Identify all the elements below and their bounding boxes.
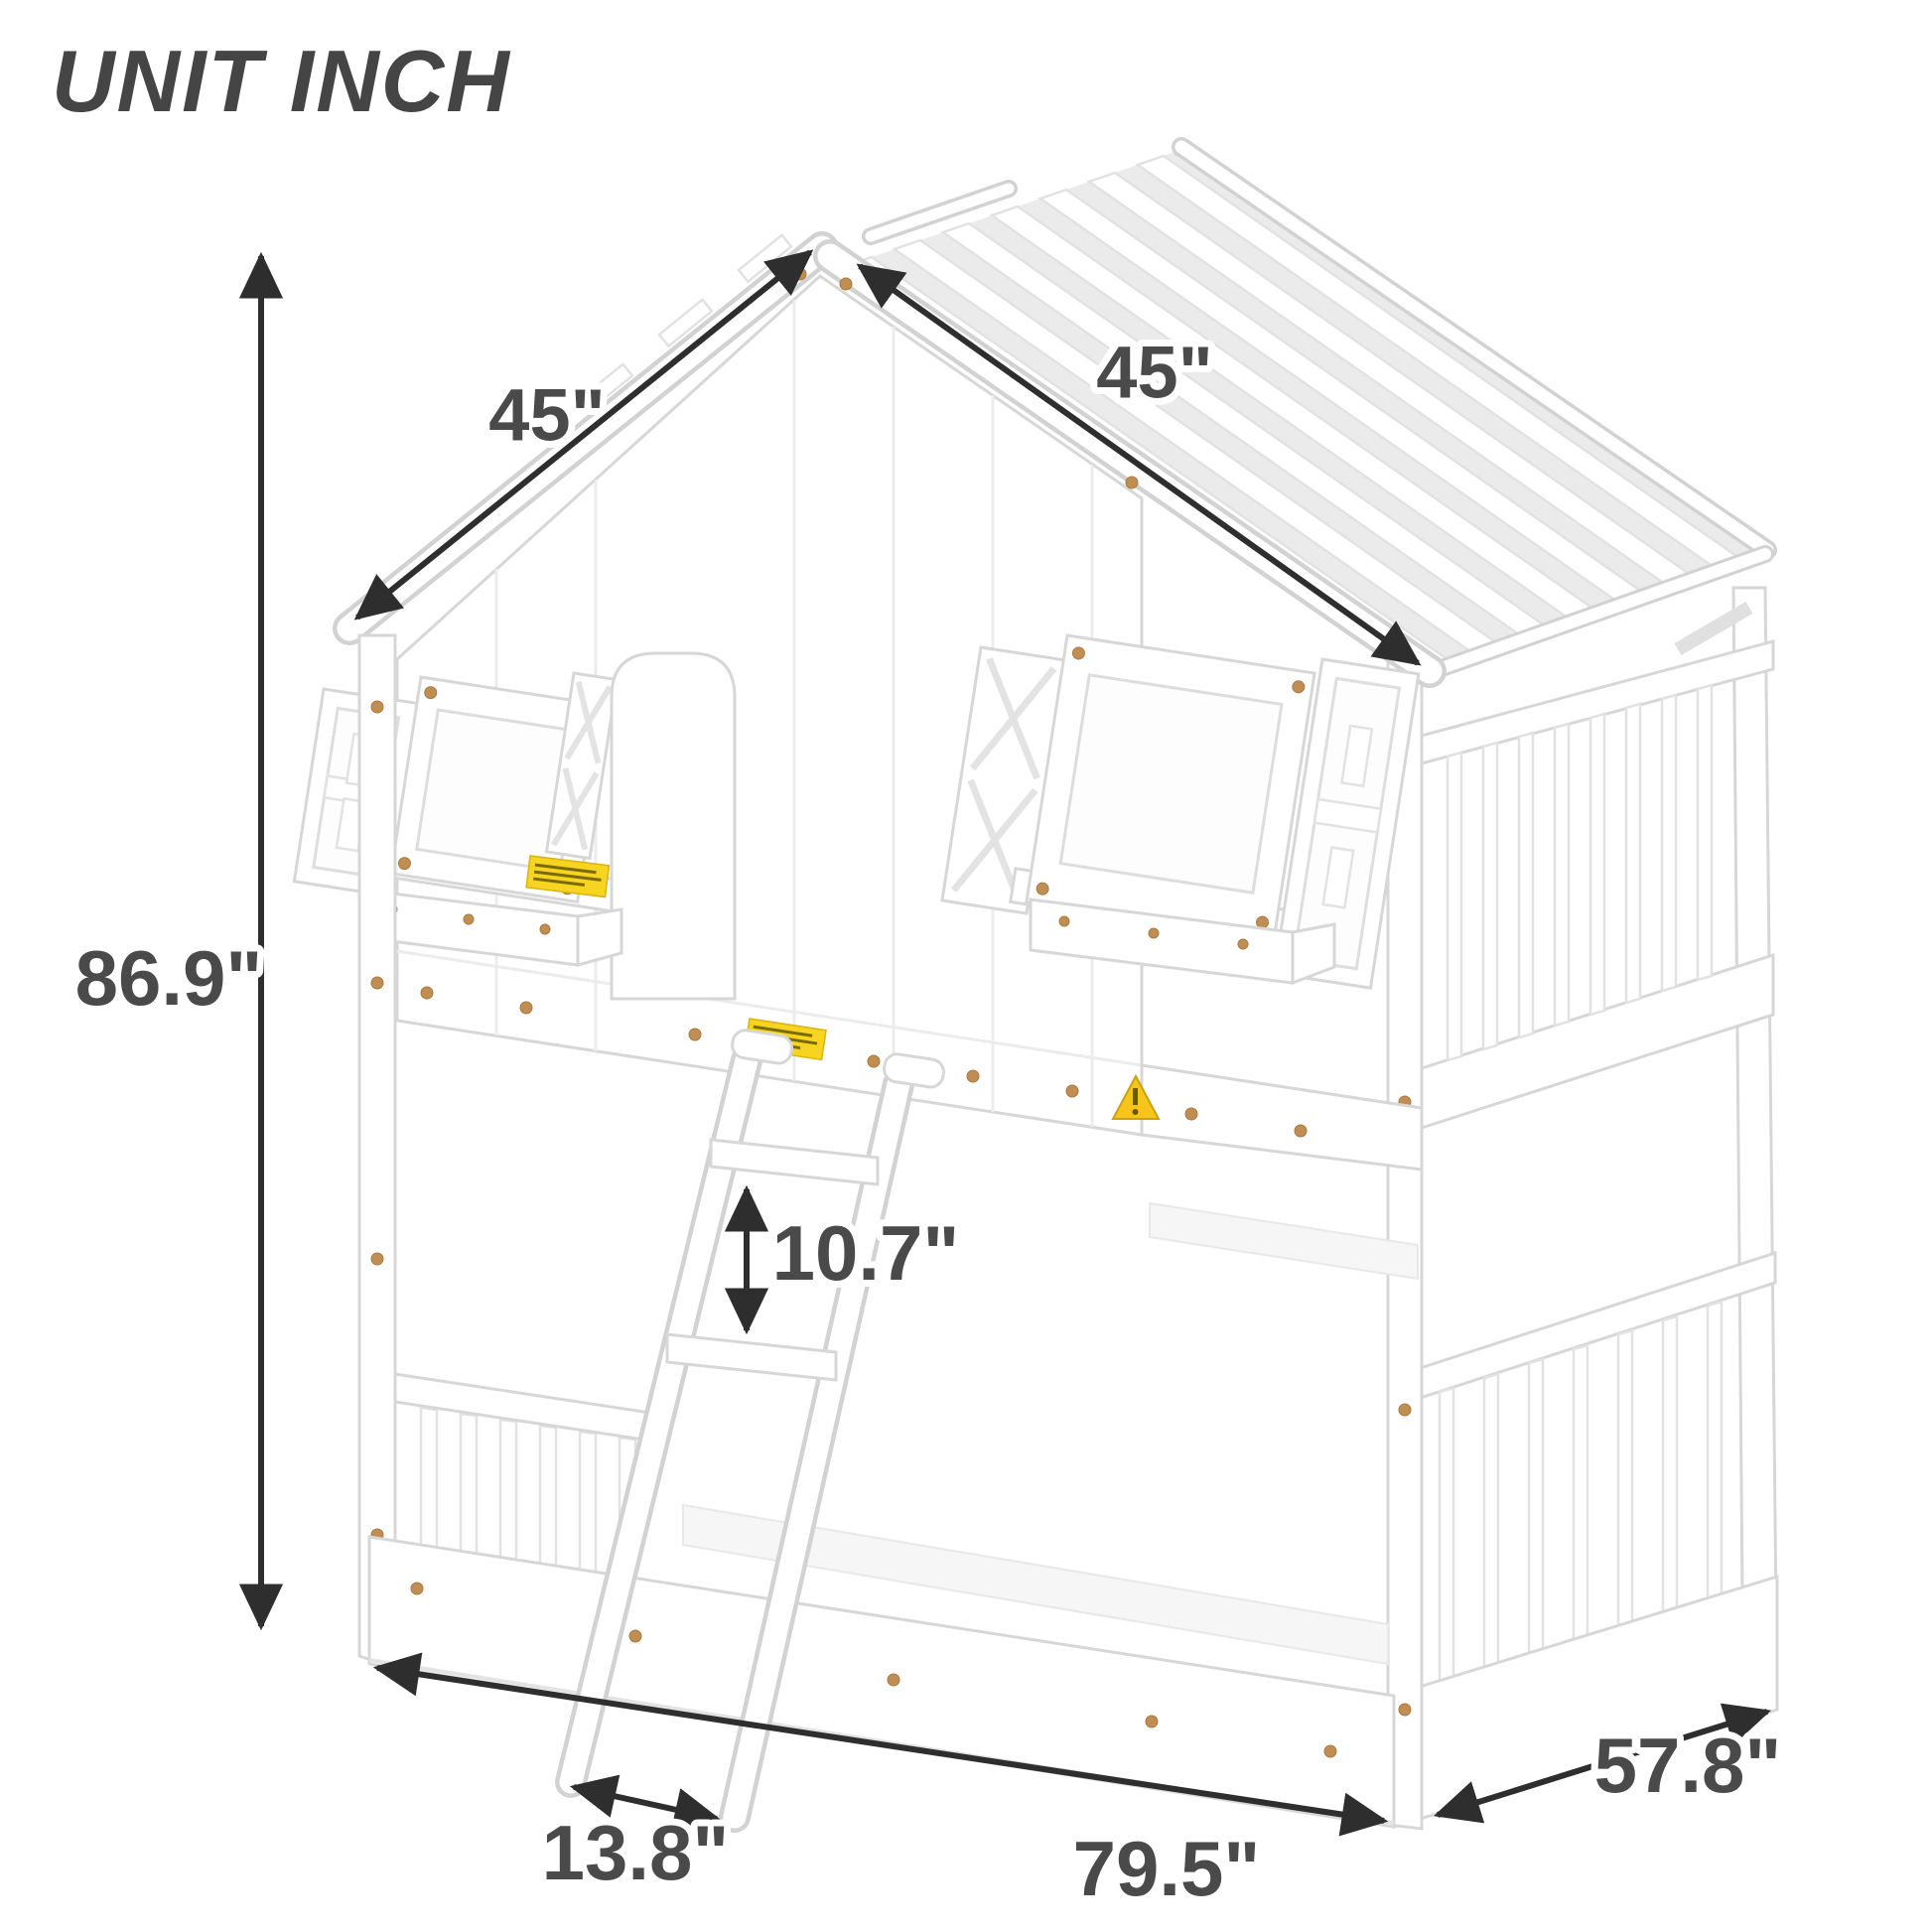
dimension-diagram: UNIT INCH 45" 45" 86.9" 10.7" 13.8" 79.5… <box>0 0 1932 1932</box>
roof-left-dimension-label: 45" <box>488 374 605 457</box>
rear-right-post <box>1733 588 1777 1706</box>
length-dimension-label: 79.5" <box>1073 1825 1261 1912</box>
front-left-post <box>359 635 395 1668</box>
ladder-footprint-dimension-label: 13.8" <box>542 1809 730 1896</box>
lower-front-band <box>369 1537 1394 1827</box>
upper-front-band-porch <box>1142 1065 1422 1170</box>
rung-spacing-dimension-label: 10.7" <box>772 1209 960 1297</box>
upper-bunk-end-rail <box>1418 641 1773 1128</box>
unit-label: UNIT INCH <box>52 32 511 130</box>
height-dimension-label: 86.9" <box>75 934 263 1022</box>
rounded-shutter-panel <box>612 653 735 999</box>
upper-deck-edge <box>1150 1203 1418 1279</box>
ladder-rung-upper <box>711 1140 878 1184</box>
roof-right-dimension-label: 45" <box>1096 332 1212 414</box>
ladder-rung-lower <box>667 1334 836 1380</box>
depth-dimension-label: 57.8" <box>1594 1722 1782 1809</box>
bunk-bed-dimension-figure: UNIT INCH 45" 45" 86.9" 10.7" 13.8" 79.5… <box>0 0 1932 1932</box>
